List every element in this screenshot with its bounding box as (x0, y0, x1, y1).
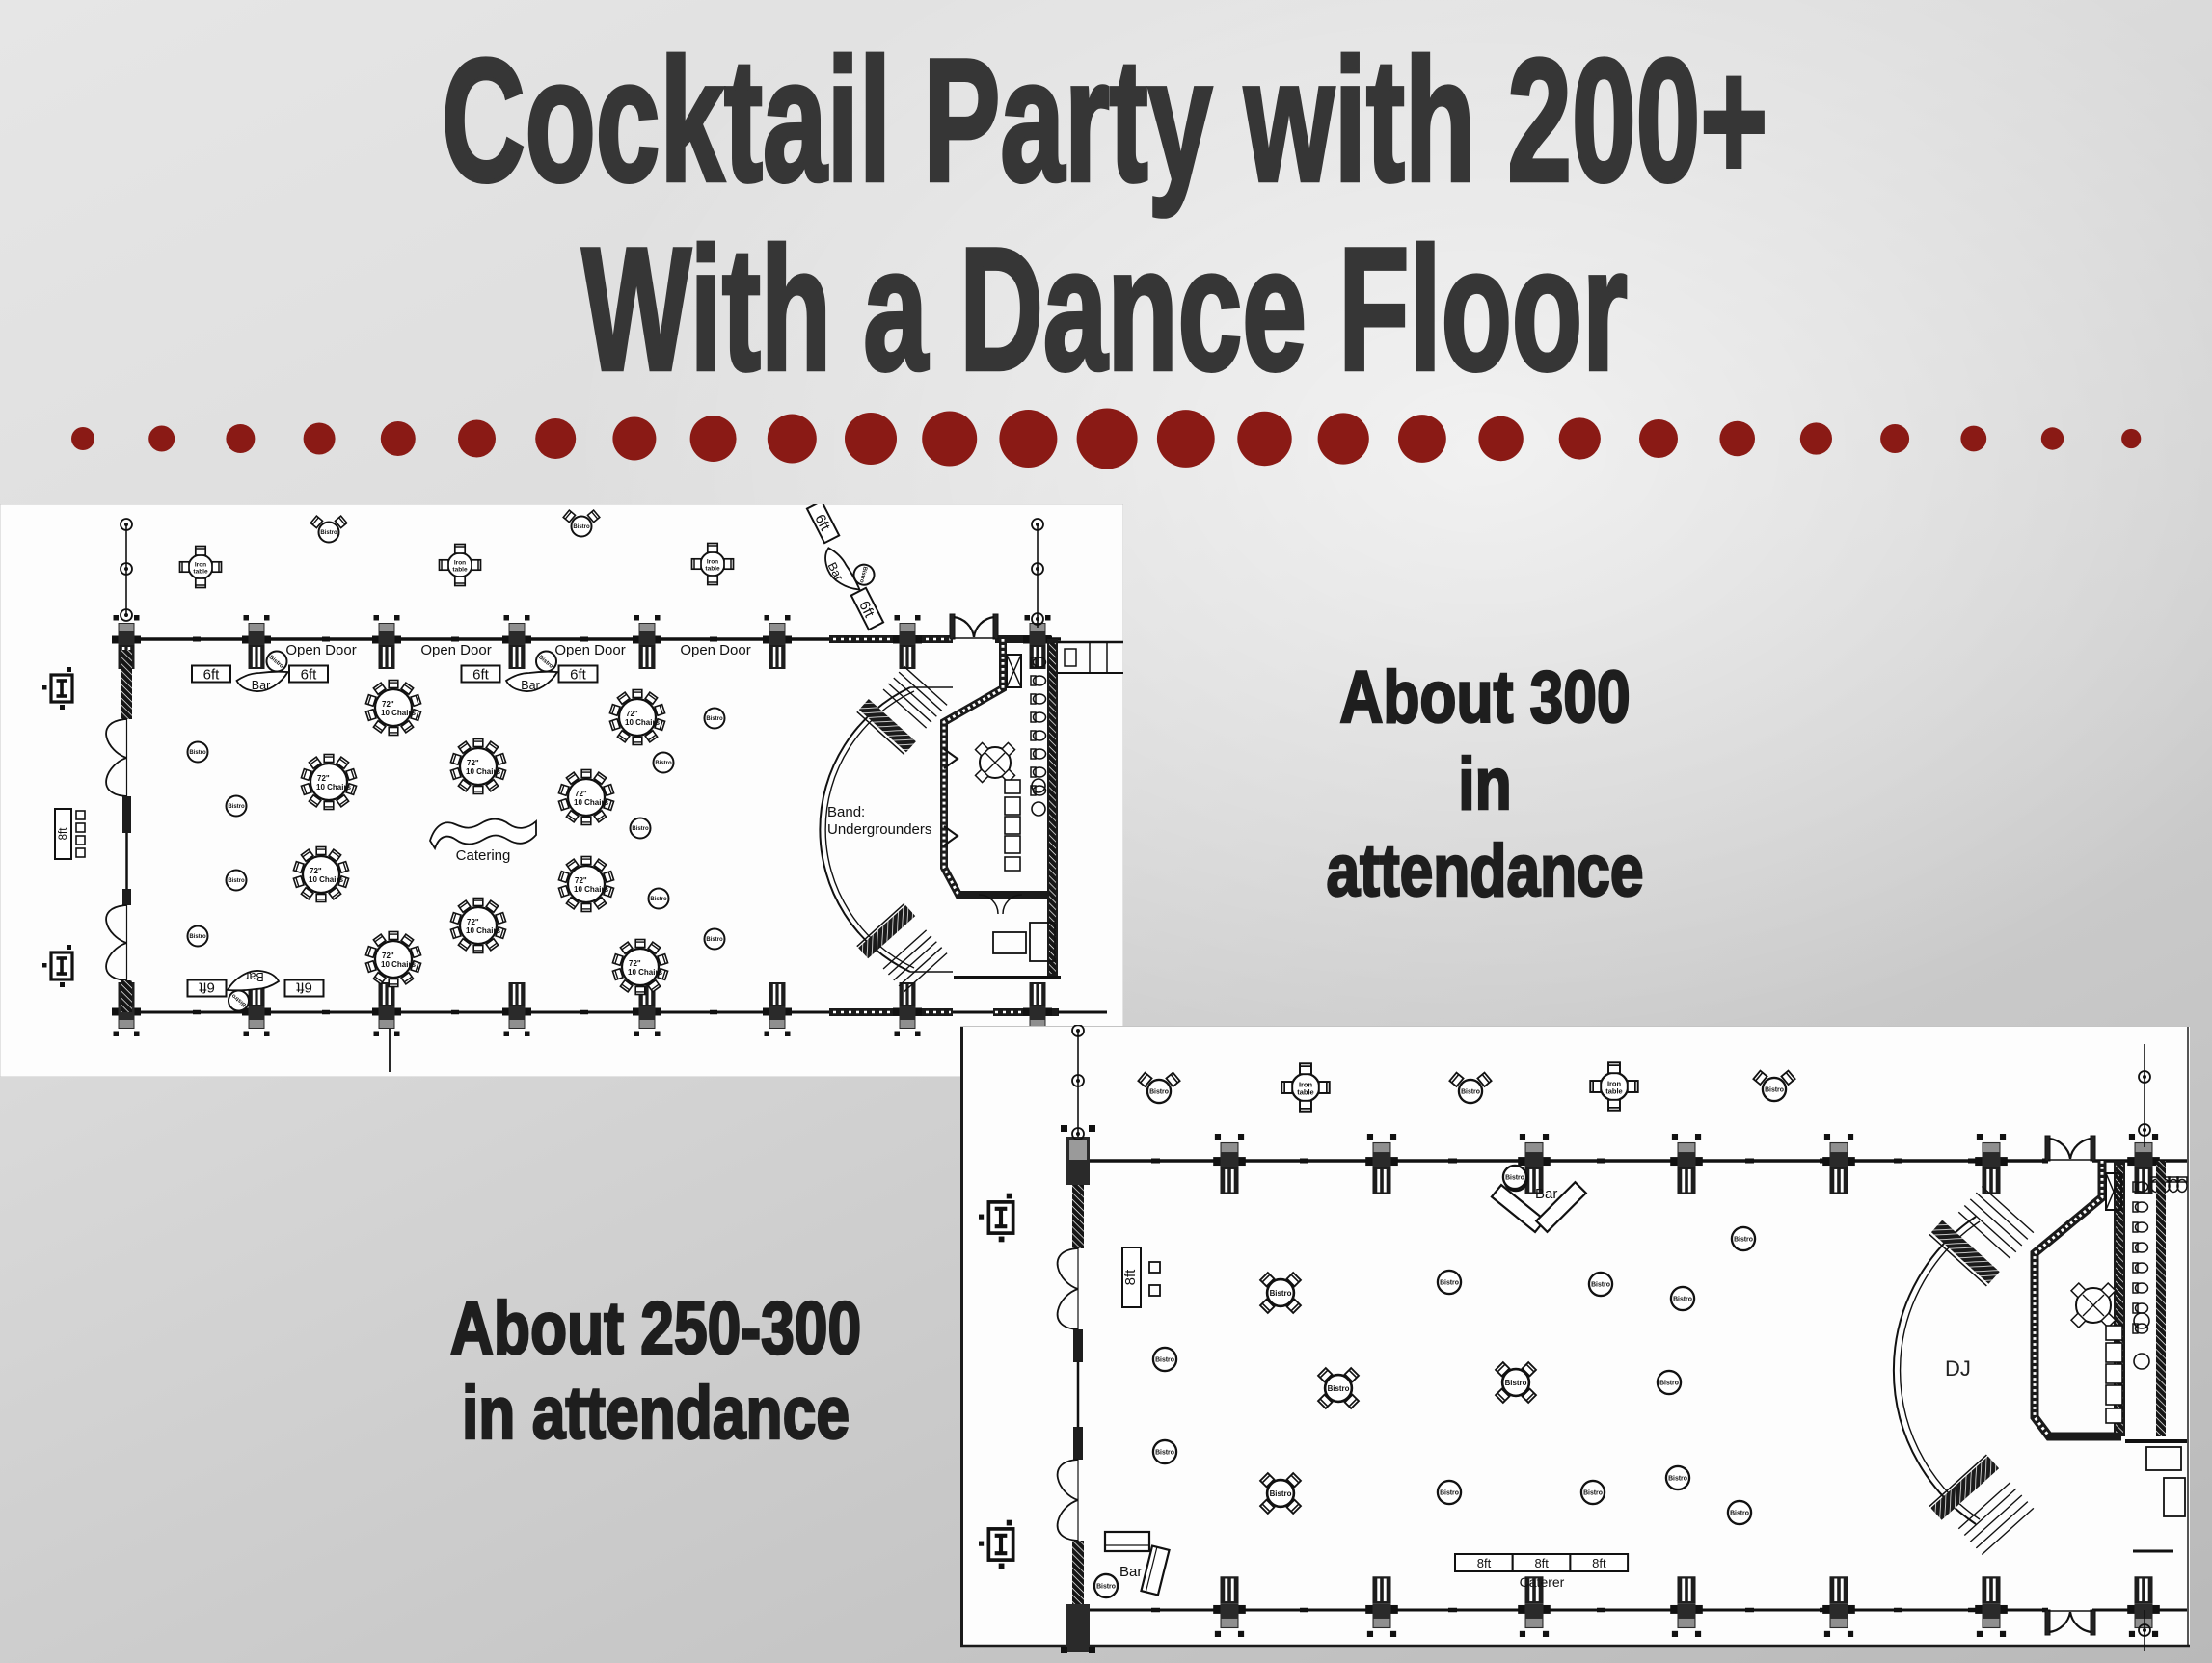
svg-text:8ft: 8ft (1534, 1556, 1549, 1570)
svg-text:8ft: 8ft (1477, 1556, 1492, 1570)
svg-text:Open Door: Open Door (554, 642, 625, 658)
svg-text:Open Door: Open Door (680, 642, 750, 658)
svg-text:8ft: 8ft (1122, 1269, 1139, 1286)
svg-text:DJ: DJ (1945, 1356, 1971, 1381)
svg-text:Bar: Bar (1119, 1564, 1142, 1580)
svg-text:8ft: 8ft (1592, 1556, 1606, 1570)
svg-text:Bar: Bar (1535, 1186, 1557, 1202)
svg-text:Band:: Band: (827, 804, 865, 820)
svg-text:Undergrounders: Undergrounders (827, 821, 931, 838)
svg-text:Open Door: Open Door (285, 642, 356, 658)
svg-text:8ft: 8ft (58, 827, 69, 841)
svg-text:Open Door: Open Door (420, 642, 491, 658)
svg-text:Catering: Catering (456, 847, 511, 864)
svg-text:Caterer: Caterer (1520, 1574, 1565, 1590)
